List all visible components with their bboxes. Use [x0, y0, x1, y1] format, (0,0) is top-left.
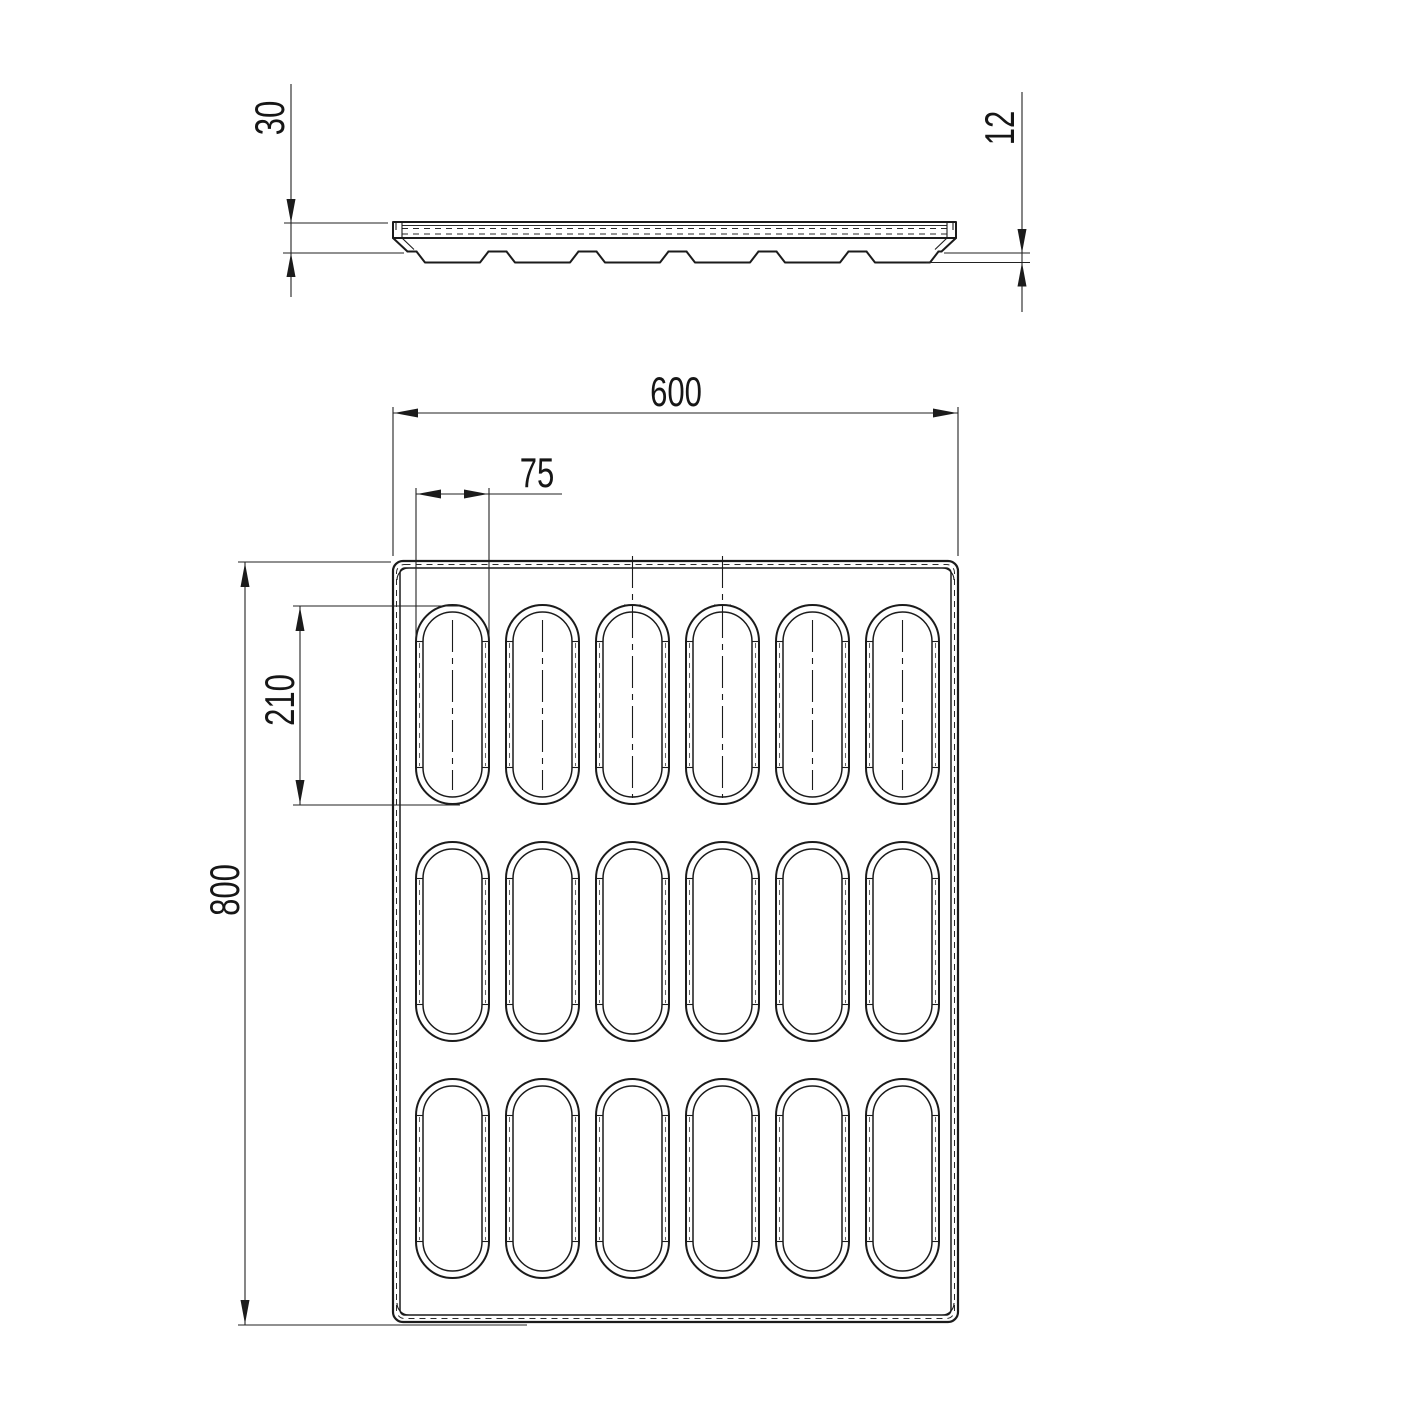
cavity: [416, 1079, 489, 1278]
dim-cavity-width-label: 75: [520, 449, 555, 496]
cavity-foot-profile: [687, 252, 759, 263]
dim-rim-height: 30: [246, 84, 404, 297]
dim-cavity-width: 75: [416, 449, 562, 642]
cavity: [596, 1079, 669, 1278]
drawing-sheet: 30 12: [0, 0, 1416, 1416]
dim-overall-length-label: 800: [201, 864, 248, 916]
cavity: [686, 842, 759, 1041]
dim-overall-width-label: 600: [650, 368, 702, 415]
plan-view: 600 75 210 800: [201, 368, 958, 1325]
cavity: [506, 1079, 579, 1278]
cavity: [506, 842, 579, 1041]
cavity: [866, 1079, 939, 1278]
side-profile-view: 30 12: [246, 84, 1030, 312]
dim-overall-length: 800: [201, 562, 527, 1325]
cavity-centerlines: [453, 556, 903, 798]
cavity-foot-profile: [417, 252, 489, 263]
dim-rim-height-label: 30: [246, 101, 293, 136]
cavity: [416, 842, 489, 1041]
cavity: [866, 842, 939, 1041]
cavity-foot-profile: [867, 252, 939, 263]
tray-rim-hidden-edge: [397, 565, 955, 1319]
cavity-foot-profile: [777, 252, 849, 263]
cavity: [686, 1079, 759, 1278]
cavity: [776, 842, 849, 1041]
side-rim-band: [393, 222, 956, 238]
cavity-foot-profile: [507, 252, 579, 263]
cavity-foot-profile: [597, 252, 669, 263]
cavity: [596, 842, 669, 1041]
dim-overall-width: 600: [393, 368, 958, 556]
dim-cavity-depth-label: 12: [976, 111, 1023, 146]
dim-cavity-depth: 12: [926, 92, 1030, 312]
technical-drawing-canvas: 30 12: [0, 0, 1416, 1416]
dim-cavity-length: 210: [256, 606, 460, 805]
cavity: [776, 1079, 849, 1278]
dim-cavity-length-label: 210: [256, 674, 303, 726]
